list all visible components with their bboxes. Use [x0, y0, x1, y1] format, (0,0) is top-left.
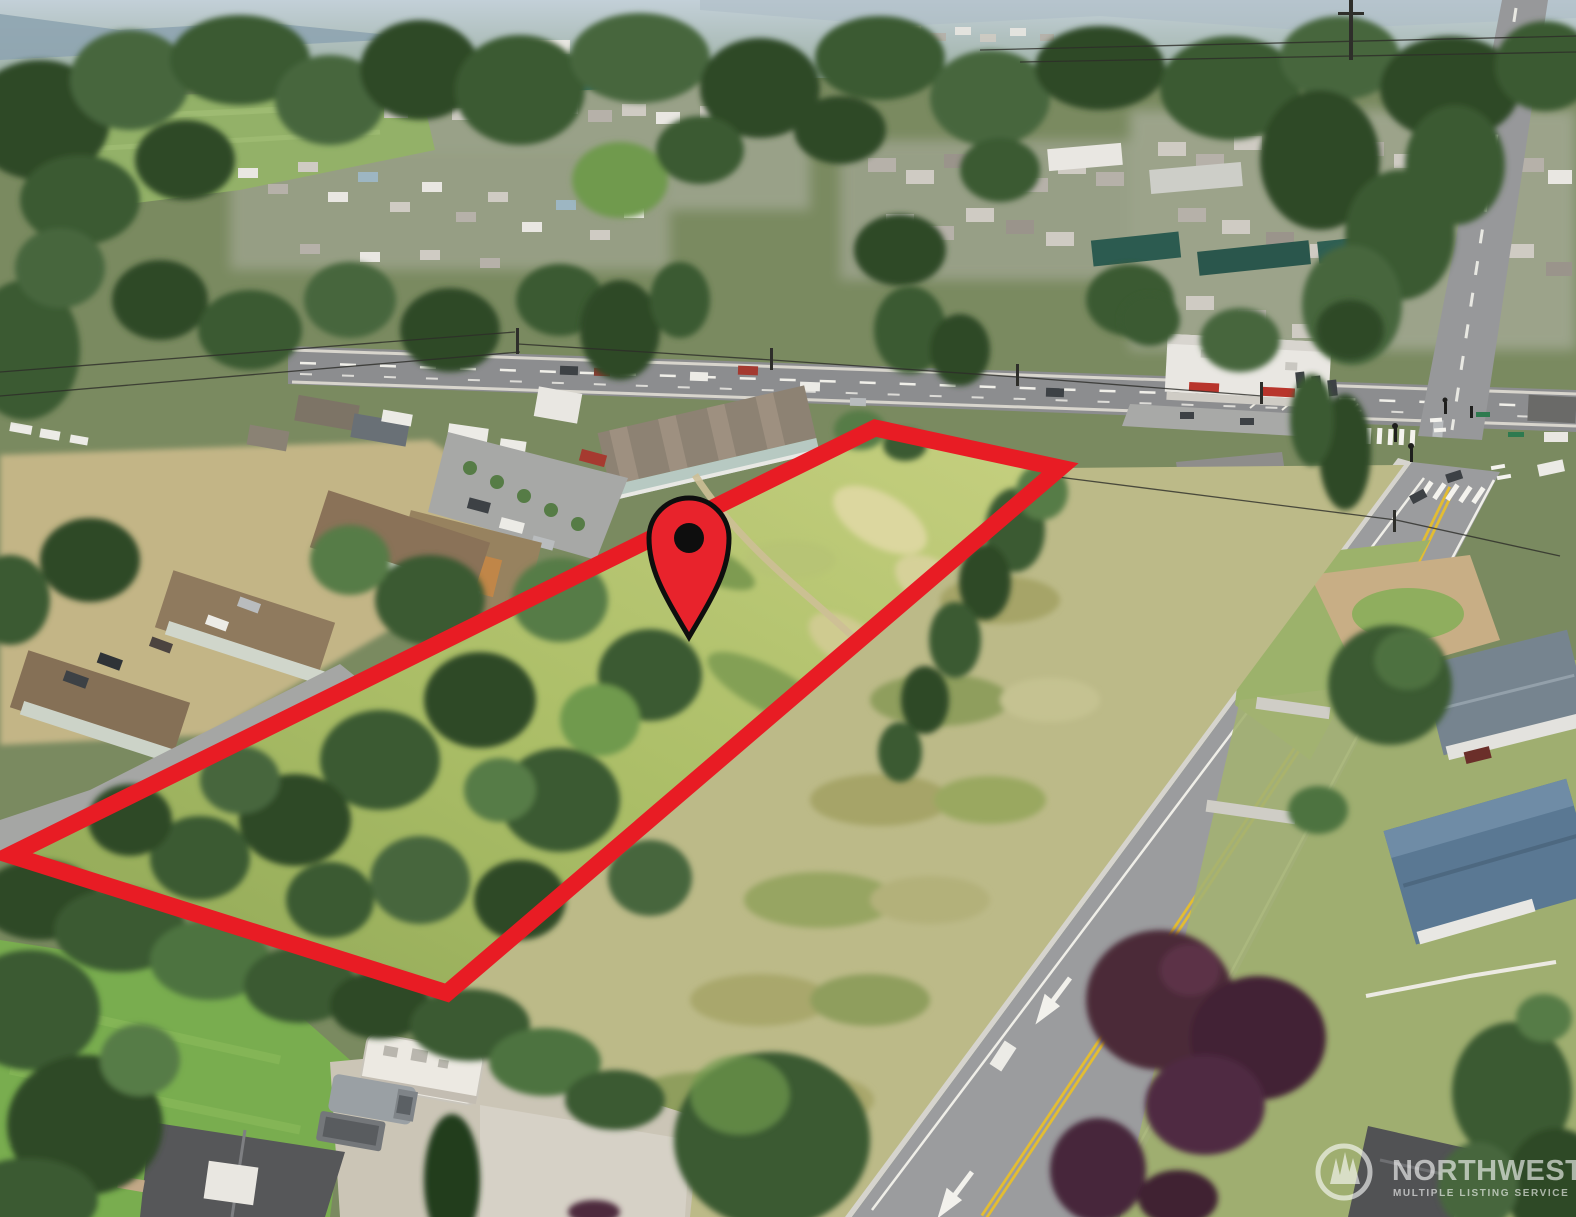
mls-tagline-text: MULTIPLE LISTING SERVICE [1393, 1188, 1569, 1199]
garden-shed [204, 1161, 259, 1206]
aerial-photo: NORTHWEST MULTIPLE LISTING SERVICE [0, 0, 1576, 1217]
parked-van [1544, 432, 1568, 442]
mls-brand-text: NORTHWEST [1392, 1155, 1576, 1187]
aerial-photo-canvas: NORTHWEST MULTIPLE LISTING SERVICE [0, 0, 1576, 1217]
corner-building [1527, 395, 1576, 423]
tall-utility-pole [1349, 0, 1353, 60]
pin-dot [674, 523, 704, 553]
storefront-sign [1261, 387, 1295, 398]
